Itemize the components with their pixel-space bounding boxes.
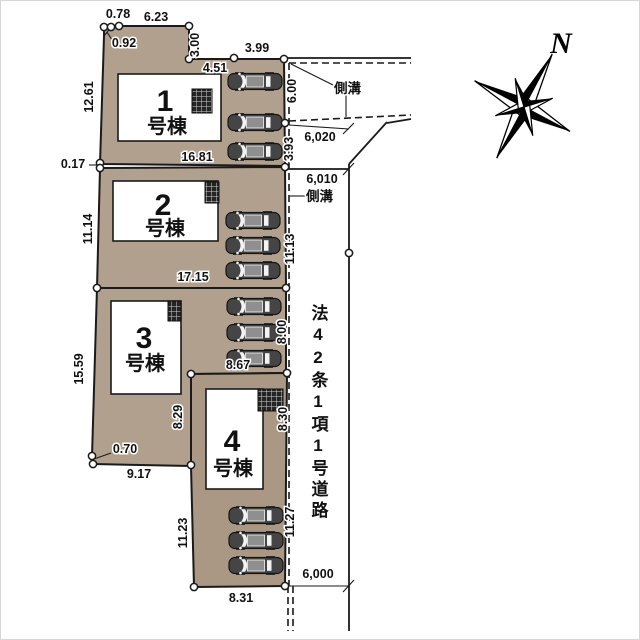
vertex-marker	[96, 164, 103, 171]
balcony-hatch-icon	[205, 182, 219, 203]
dimension-label: 8.00	[275, 320, 289, 344]
vertex-marker	[187, 461, 194, 468]
gutter-label-top: 側溝	[333, 80, 361, 96]
vertex-marker	[345, 249, 352, 256]
balcony-hatch-icon	[168, 301, 181, 321]
car-icon	[229, 556, 283, 575]
dimension-label: 3.00	[188, 33, 202, 57]
vertex-marker	[280, 55, 287, 62]
dimension-label: 4.51	[203, 61, 227, 75]
road-name-label: 法42条1項1号道路	[309, 303, 330, 522]
dimension-label: 17.15	[177, 270, 208, 284]
vertex-marker	[100, 23, 107, 30]
vertex-marker	[89, 460, 96, 467]
vertex-marker	[281, 119, 288, 126]
north-label: N	[549, 27, 573, 60]
car-icon	[226, 236, 280, 255]
road-width-line-6020	[289, 125, 349, 129]
dimension-label: 0.78	[106, 7, 130, 21]
vertex-marker	[281, 582, 288, 589]
building-4-suffix: 号棟	[213, 456, 254, 480]
dimension-label: 3.99	[245, 41, 269, 55]
vertex-marker	[115, 22, 122, 29]
dimension-label: 3.93	[282, 137, 296, 161]
compass-rose-icon	[447, 28, 598, 183]
dimension-label: 0.92	[112, 36, 136, 50]
vertex-marker	[282, 284, 289, 291]
building-2-suffix: 号棟	[145, 216, 186, 240]
road-edge-mid	[387, 119, 411, 123]
dimension-label: 11.14	[81, 214, 95, 245]
dimension-label: 8.31	[229, 591, 253, 605]
gutter-line-mid	[289, 115, 411, 121]
site-plan-svg: 1 号棟 2 号棟 3 号棟 4 号棟 0.786.230.923.003.99…	[1, 1, 640, 640]
dimension-label: 0.17	[61, 157, 85, 171]
building-1-suffix: 号棟	[147, 114, 188, 138]
dimension-label: 6.00	[285, 79, 299, 103]
vertex-marker	[190, 583, 197, 590]
dimension-label: 11.27	[283, 507, 297, 538]
vertex-marker	[107, 23, 114, 30]
car-icon	[226, 261, 280, 280]
vertex-marker	[187, 370, 194, 377]
dimension-label: 6.23	[144, 10, 168, 24]
vertex-marker	[93, 284, 100, 291]
dimension-label: 0.70	[113, 442, 137, 456]
dimension-label: 9.17	[127, 467, 151, 481]
car-icon	[228, 72, 282, 91]
car-icon	[227, 323, 281, 342]
dimension-label: 6,000	[302, 567, 333, 581]
dimension-label: 15.59	[72, 353, 86, 384]
site-plan-image: 1 号棟 2 号棟 3 号棟 4 号棟 0.786.230.923.003.99…	[0, 0, 640, 640]
car-icon	[226, 211, 280, 230]
dimension-label: 12.61	[82, 81, 96, 112]
dimension-label: 11.13	[283, 234, 297, 265]
dimension-label: 8.30	[276, 407, 290, 431]
vertex-marker	[185, 22, 192, 29]
dimension-label: 6,010	[306, 172, 337, 186]
car-icon	[227, 297, 281, 316]
building-3-suffix: 号棟	[125, 351, 166, 375]
vertex-marker	[88, 452, 95, 459]
car-icon	[228, 113, 282, 132]
car-icon	[228, 142, 282, 161]
building-3-number: 3	[136, 322, 153, 355]
building-1-number: 1	[157, 85, 174, 118]
vertex-marker	[230, 54, 237, 61]
car-icon	[229, 506, 283, 525]
dimension-label: 11.23	[176, 518, 190, 549]
dimension-label: 16.81	[181, 150, 212, 164]
car-icon	[229, 531, 283, 550]
building-4-number: 4	[224, 425, 241, 458]
road-corner-chamfer	[349, 122, 387, 164]
balcony-hatch-icon	[192, 89, 212, 113]
dimension-label: 8.29	[171, 405, 185, 429]
gutter-label-side: 側溝	[305, 188, 333, 204]
vertex-marker	[283, 369, 290, 376]
dimension-label: 8.67	[226, 358, 250, 372]
vertex-marker	[281, 163, 288, 170]
dimension-label: 6,020	[304, 130, 335, 144]
